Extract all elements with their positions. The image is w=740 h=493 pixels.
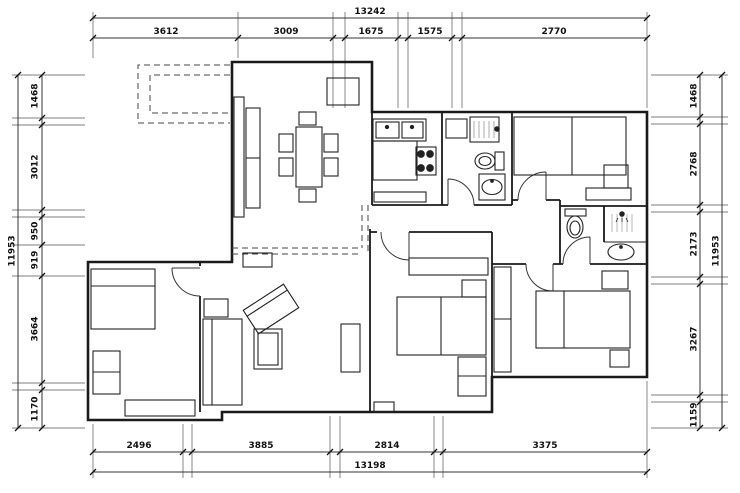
- column: [374, 402, 394, 412]
- shower-head-icon: [495, 127, 499, 131]
- toilet-tank: [495, 152, 504, 170]
- desk-icon: [604, 165, 628, 188]
- dim-left-seg: 950: [32, 222, 41, 241]
- toilet-seat: [479, 157, 491, 166]
- faucet-icon: [620, 246, 623, 249]
- dashed-lines: [138, 65, 368, 254]
- cabinet-icon: [243, 253, 272, 267]
- dim-top-total: 13242: [354, 8, 385, 17]
- nightstand-icon: [602, 271, 628, 289]
- dim-top-seg: 3612: [153, 28, 178, 37]
- double-bed-icon: [514, 117, 626, 175]
- bedroom-middle: [374, 258, 488, 412]
- tv-cabinet-icon: [341, 324, 360, 372]
- nightstand-icon: [462, 280, 486, 297]
- removed-wall-dashed: [232, 205, 368, 254]
- sink-basin: [376, 122, 399, 138]
- faucet-icon: [410, 125, 413, 128]
- low-cabinet-icon: [374, 192, 426, 202]
- door-swing-bathroom-top: [448, 179, 474, 205]
- chair-icon: [324, 134, 338, 152]
- living-room: [203, 253, 360, 405]
- dining-table-icon: [296, 127, 322, 187]
- shower-hatch: [474, 121, 494, 138]
- lounge-chair-line: [247, 290, 287, 316]
- bathroom-top: [446, 117, 505, 200]
- furniture: [91, 78, 647, 416]
- door-swing-bedroom-middle: [381, 232, 409, 260]
- floor-plan-drawing: [0, 0, 740, 493]
- burner: [418, 165, 425, 172]
- desk-return: [586, 188, 631, 200]
- dim-bottom-seg: 3375: [532, 442, 557, 451]
- tall-wardrobe-icon: [234, 97, 244, 217]
- desk-icon: [125, 400, 195, 416]
- counter-icon: [373, 141, 417, 180]
- dim-top-seg: 3009: [273, 28, 298, 37]
- dim-right-seg: 2768: [691, 151, 700, 176]
- toilet-seat: [570, 221, 580, 235]
- bedroom-bottom-right: [494, 267, 630, 372]
- dim-left-seg: 919: [32, 251, 41, 270]
- bedroom-bottom-left: [91, 269, 195, 416]
- lounge-chair-rotated: [243, 284, 299, 334]
- toilet-icon: [475, 153, 495, 169]
- door-swing-bedroom-bottomright: [526, 264, 553, 291]
- dim-right-seg: 1468: [691, 83, 700, 108]
- dim-top-seg: 2770: [541, 28, 566, 37]
- shower-spray: [616, 218, 628, 222]
- sink-basin: [402, 122, 423, 138]
- basin-stand: [479, 174, 505, 200]
- dim-bottom-seg: 3885: [248, 442, 273, 451]
- toilet-tank: [565, 209, 586, 216]
- shower-head-icon: [620, 212, 624, 216]
- partition-walls: [200, 112, 647, 412]
- sofa-icon: [203, 319, 242, 405]
- dim-top-seg: 1575: [417, 28, 442, 37]
- floor-plan-sheet: 13242 3612 3009 1675 1575 2770 2496 3885…: [0, 0, 740, 493]
- double-bed-icon: [536, 291, 630, 348]
- chair-icon: [299, 189, 316, 202]
- dim-left-seg: 3664: [32, 316, 41, 341]
- cabinet-icon: [327, 78, 359, 105]
- doors: [172, 172, 590, 296]
- dim-left-seg: 3012: [32, 154, 41, 179]
- desk-icon: [409, 258, 488, 275]
- bathroom-right: [565, 209, 647, 260]
- dim-left-total: 11953: [9, 235, 18, 266]
- armchair-icon: [204, 299, 228, 317]
- kitchen: [373, 119, 436, 202]
- nightstand-icon: [610, 350, 629, 367]
- dim-right-seg: 3267: [691, 326, 700, 351]
- chair-icon: [324, 158, 338, 176]
- burner: [418, 151, 425, 158]
- door-swing-bedroom-topright: [518, 172, 546, 200]
- chair-icon: [279, 158, 293, 176]
- burner: [427, 165, 434, 172]
- dim-right-seg: 1159: [691, 402, 700, 427]
- dining-area: [234, 78, 359, 217]
- dim-top-seg: 1675: [358, 28, 383, 37]
- dim-bottom-seg: 2496: [126, 442, 151, 451]
- burner: [427, 151, 434, 158]
- faucet-icon: [491, 180, 494, 183]
- coffee-table-inner: [258, 333, 278, 365]
- cabinet-icon: [446, 119, 467, 138]
- balcony-dashed-outline: [138, 65, 230, 123]
- bedroom-top-right: [514, 117, 631, 200]
- faucet-icon: [385, 125, 388, 128]
- dim-right-total: 11953: [713, 235, 722, 266]
- dim-left-seg: 1170: [32, 396, 41, 421]
- chair-icon: [279, 134, 293, 152]
- chair-icon: [299, 112, 316, 125]
- dim-left-seg: 1468: [32, 83, 41, 108]
- dim-right-seg: 2173: [691, 231, 700, 256]
- lounge-chair-icon: [243, 284, 299, 334]
- double-bed-icon: [91, 269, 155, 329]
- dim-bottom-total: 13198: [354, 462, 385, 471]
- door-swing-bedroom-left: [172, 268, 200, 296]
- dim-bottom-seg: 2814: [374, 442, 399, 451]
- door-swing-bathroom-right: [563, 237, 590, 264]
